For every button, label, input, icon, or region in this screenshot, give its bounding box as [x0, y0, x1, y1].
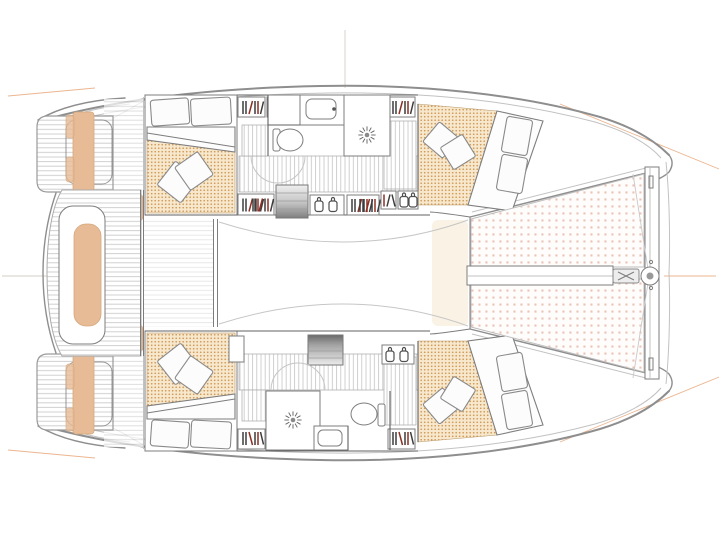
saloon-glow	[432, 220, 468, 326]
saloon-sliding-door	[214, 219, 218, 327]
bow-stem-line	[666, 162, 670, 384]
coachroof-line	[219, 304, 468, 326]
vanity-cabinet	[268, 95, 300, 125]
bowsprit-pin	[647, 273, 654, 280]
coachroof-line	[219, 220, 468, 242]
cockpit-floor-aft	[143, 219, 213, 327]
toilet-icon	[351, 403, 377, 425]
companionway-steps-port	[276, 185, 308, 218]
shower-stall	[344, 95, 390, 156]
port-inner-shelves	[238, 191, 418, 215]
toilet-icon	[277, 129, 303, 151]
faucet-icon	[332, 107, 336, 111]
floorplan-canvas	[0, 0, 720, 540]
floorplan-page	[0, 0, 720, 540]
cockpit-bench-cushion	[74, 224, 101, 326]
companionway-steps-starboard	[308, 335, 343, 365]
toilet-tank	[378, 404, 385, 426]
